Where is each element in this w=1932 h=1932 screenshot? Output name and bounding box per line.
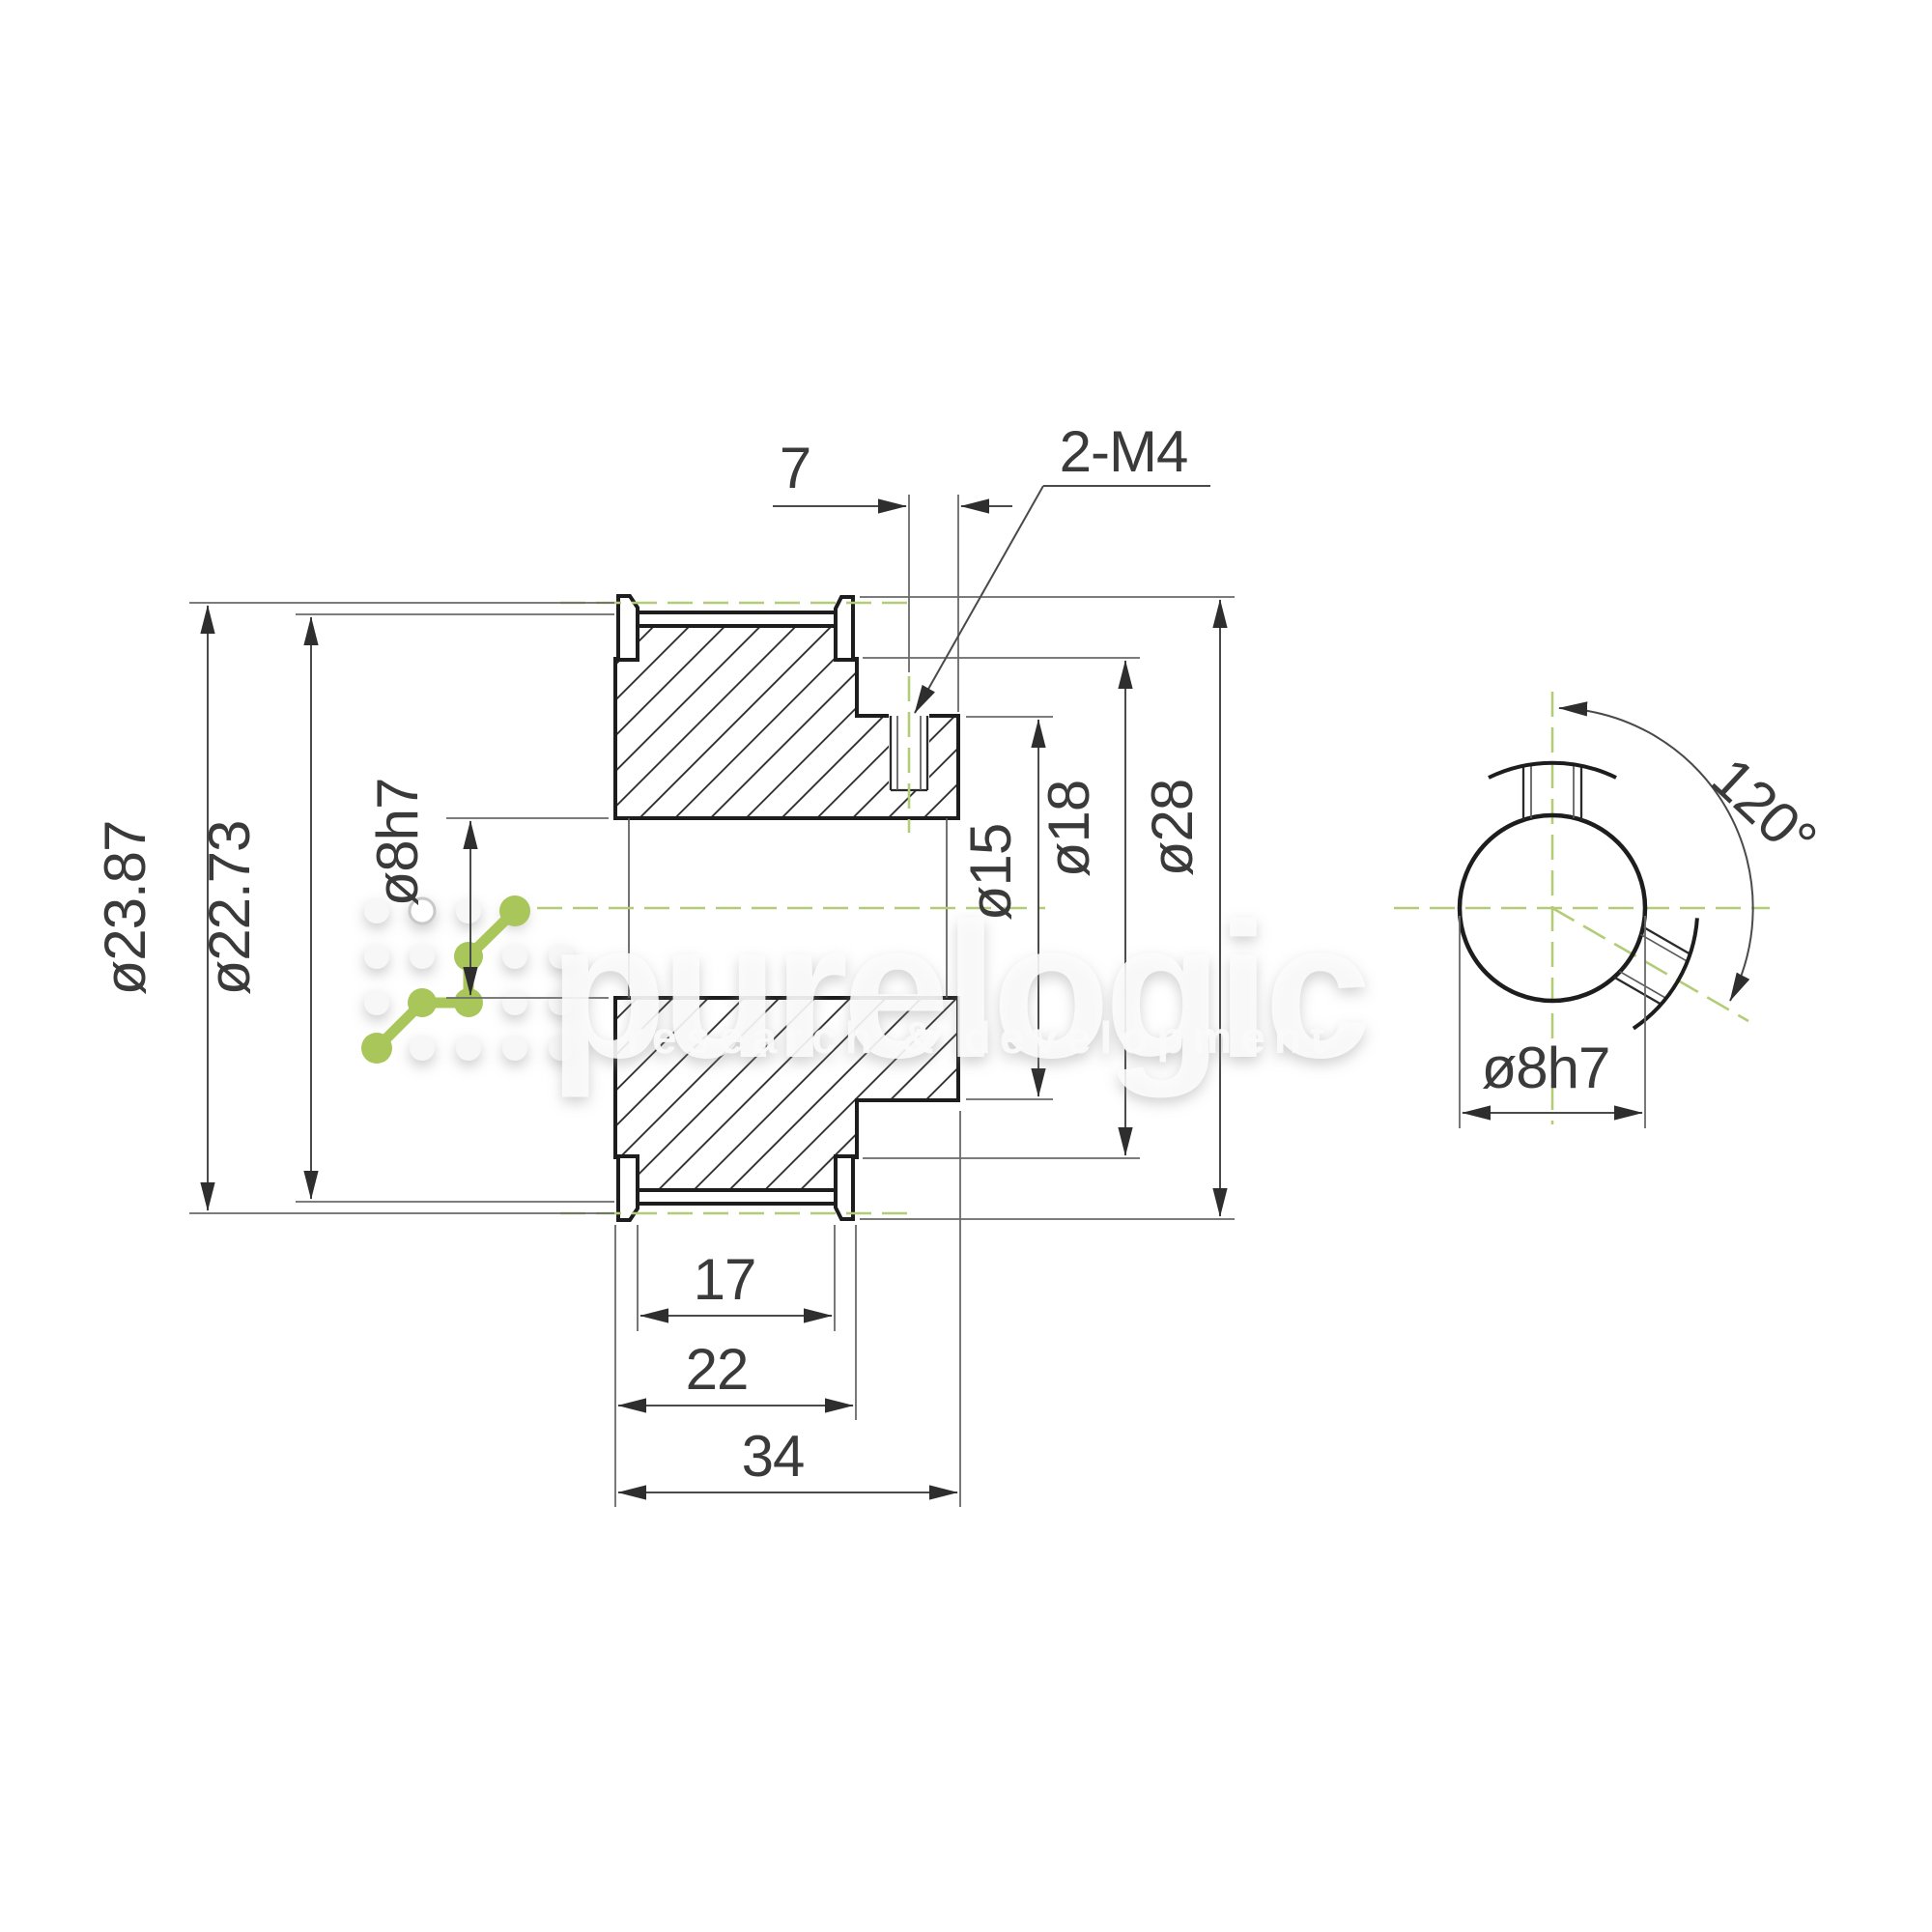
technical-drawing: ø23.87 ø22.73 ø8h7 7 2-M4 ø15 ø18 ø28 17… bbox=[0, 0, 1932, 1932]
angle-dimension-arc bbox=[1559, 708, 1753, 1001]
flange-top-left bbox=[618, 596, 638, 660]
label-setscrew-angle: 120° bbox=[1699, 746, 1829, 872]
drawing-canvas: ø23.87 ø22.73 ø8h7 7 2-M4 ø15 ø18 ø28 17… bbox=[0, 0, 1932, 1932]
flange-bottom-right bbox=[836, 1156, 853, 1219]
brand-watermark: purelogic research & development bbox=[549, 883, 1367, 1098]
label-flange-width: 22 bbox=[686, 1337, 749, 1402]
flange-bottom-left bbox=[618, 1156, 638, 1220]
label-setscrew-offset: 7 bbox=[780, 436, 810, 500]
watermark-brand-text: purelogic bbox=[549, 883, 1367, 1098]
watermark-tagline-text: research & development bbox=[626, 1012, 1333, 1063]
label-tooth-width: 17 bbox=[694, 1247, 756, 1312]
label-overall-length: 34 bbox=[742, 1424, 805, 1489]
label-outside-diameter: ø22.73 bbox=[197, 821, 262, 996]
label-bore-diameter-side: ø8h7 bbox=[365, 779, 430, 907]
label-hub-step-diameter: ø18 bbox=[1037, 781, 1101, 877]
logo-green-constellation bbox=[361, 895, 530, 1064]
setscrew-leader bbox=[915, 486, 1210, 713]
label-bore-diameter-end: ø8h7 bbox=[1482, 1036, 1610, 1100]
label-flange-diameter: ø28 bbox=[1140, 780, 1205, 876]
flange-top-right bbox=[836, 597, 853, 660]
label-setscrew-spec: 2-M4 bbox=[1060, 419, 1188, 484]
label-pitch-diameter: ø23.87 bbox=[93, 821, 157, 996]
